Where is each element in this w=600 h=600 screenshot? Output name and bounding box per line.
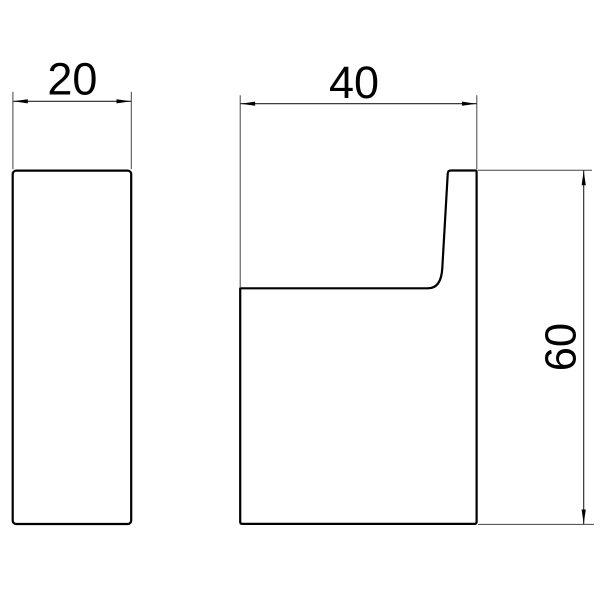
- svg-text:20: 20: [47, 54, 97, 105]
- svg-text:40: 40: [329, 57, 379, 108]
- svg-text:60: 60: [538, 323, 586, 371]
